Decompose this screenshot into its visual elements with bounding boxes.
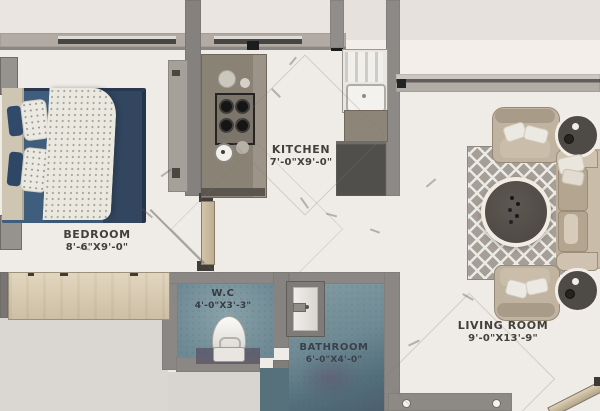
floor-mark bbox=[426, 178, 436, 187]
side-table-top bbox=[555, 113, 600, 158]
stove-burner bbox=[219, 99, 234, 114]
wc-dimensions: 4'-0"X3'-3" bbox=[178, 301, 268, 312]
side-table-bottom bbox=[555, 268, 600, 313]
entrance-door-leaf bbox=[547, 380, 600, 411]
floor-plan: BEDROOM 8'-6"X9'-0" KITCHEN 7'-0"X9'-0" … bbox=[0, 0, 600, 411]
bedroom-dimensions: 8'-6"X9'-0" bbox=[37, 242, 157, 255]
bed-pillow bbox=[20, 99, 51, 142]
kitchen-dimensions: 7'-0"X9'-0" bbox=[245, 157, 357, 170]
outside-area-bottom-mid bbox=[168, 372, 260, 411]
wc-name: W.C bbox=[178, 288, 268, 301]
bathroom-label: BATHROOM 6'-0"X4'-0" bbox=[283, 342, 385, 366]
bathroom-dimensions: 6'-0"X4'-0" bbox=[283, 355, 385, 366]
bedroom-label: BEDROOM 8'-6"X9'-0" bbox=[37, 228, 157, 254]
coffee-table bbox=[481, 177, 551, 247]
armchair-top-backrest bbox=[495, 109, 555, 123]
wc-label: W.C 4'-0"X3'-3" bbox=[178, 288, 268, 312]
bathroom-faucet bbox=[293, 303, 306, 312]
outside-area-bottom-left bbox=[0, 318, 168, 411]
sofa-lumbar-pillow bbox=[564, 214, 578, 244]
wall-kitchen-right bbox=[386, 0, 400, 196]
wall-living-top bbox=[396, 74, 600, 92]
wardrobe-handle bbox=[172, 70, 180, 76]
bathroom-floor-extension bbox=[260, 368, 289, 411]
armchair-bottom-backrest bbox=[497, 303, 555, 317]
wardrobe-handle bbox=[60, 273, 68, 276]
coffee-table-decor bbox=[510, 196, 514, 200]
wall-living-top-block bbox=[397, 79, 406, 88]
kitchen-bowl bbox=[240, 78, 250, 88]
kitchen-label: KITCHEN 7'-0"X9'-0" bbox=[245, 143, 357, 169]
wall-stub-kitchen-top bbox=[330, 0, 344, 48]
sink-drainboard bbox=[345, 52, 383, 82]
kitchen-bowl bbox=[218, 70, 236, 88]
entrance-door-hinge bbox=[594, 377, 600, 386]
toilet-tank bbox=[213, 347, 245, 362]
side-table-cup bbox=[572, 123, 579, 130]
living-room-label: LIVING ROOM 9'-0"X13'-9" bbox=[438, 319, 568, 345]
floor-mark bbox=[370, 228, 380, 233]
kitchen-sink-drain bbox=[221, 150, 225, 154]
sink-basin-drain bbox=[362, 94, 366, 98]
living-room-name: LIVING ROOM bbox=[438, 319, 568, 333]
bathroom-faucet-knob bbox=[305, 305, 309, 309]
bathroom-name: BATHROOM bbox=[283, 342, 385, 355]
bedroom-name: BEDROOM bbox=[37, 228, 157, 242]
side-table-item bbox=[565, 289, 575, 299]
wardrobe-handle bbox=[130, 273, 138, 276]
living-room-dimensions: 9'-0"X13'-9" bbox=[438, 333, 568, 346]
side-table-item bbox=[564, 134, 574, 144]
window-bedroom-glass bbox=[58, 39, 176, 44]
window-frame-block bbox=[247, 41, 259, 50]
side-table-cup bbox=[572, 278, 579, 285]
wardrobe-handle bbox=[172, 168, 180, 178]
wardrobe-bottom bbox=[8, 272, 170, 320]
wardrobe-handle bbox=[28, 273, 34, 276]
wall-left-end-cap bbox=[0, 272, 8, 318]
kitchen-name: KITCHEN bbox=[245, 143, 357, 157]
bed-duvet bbox=[43, 88, 118, 220]
